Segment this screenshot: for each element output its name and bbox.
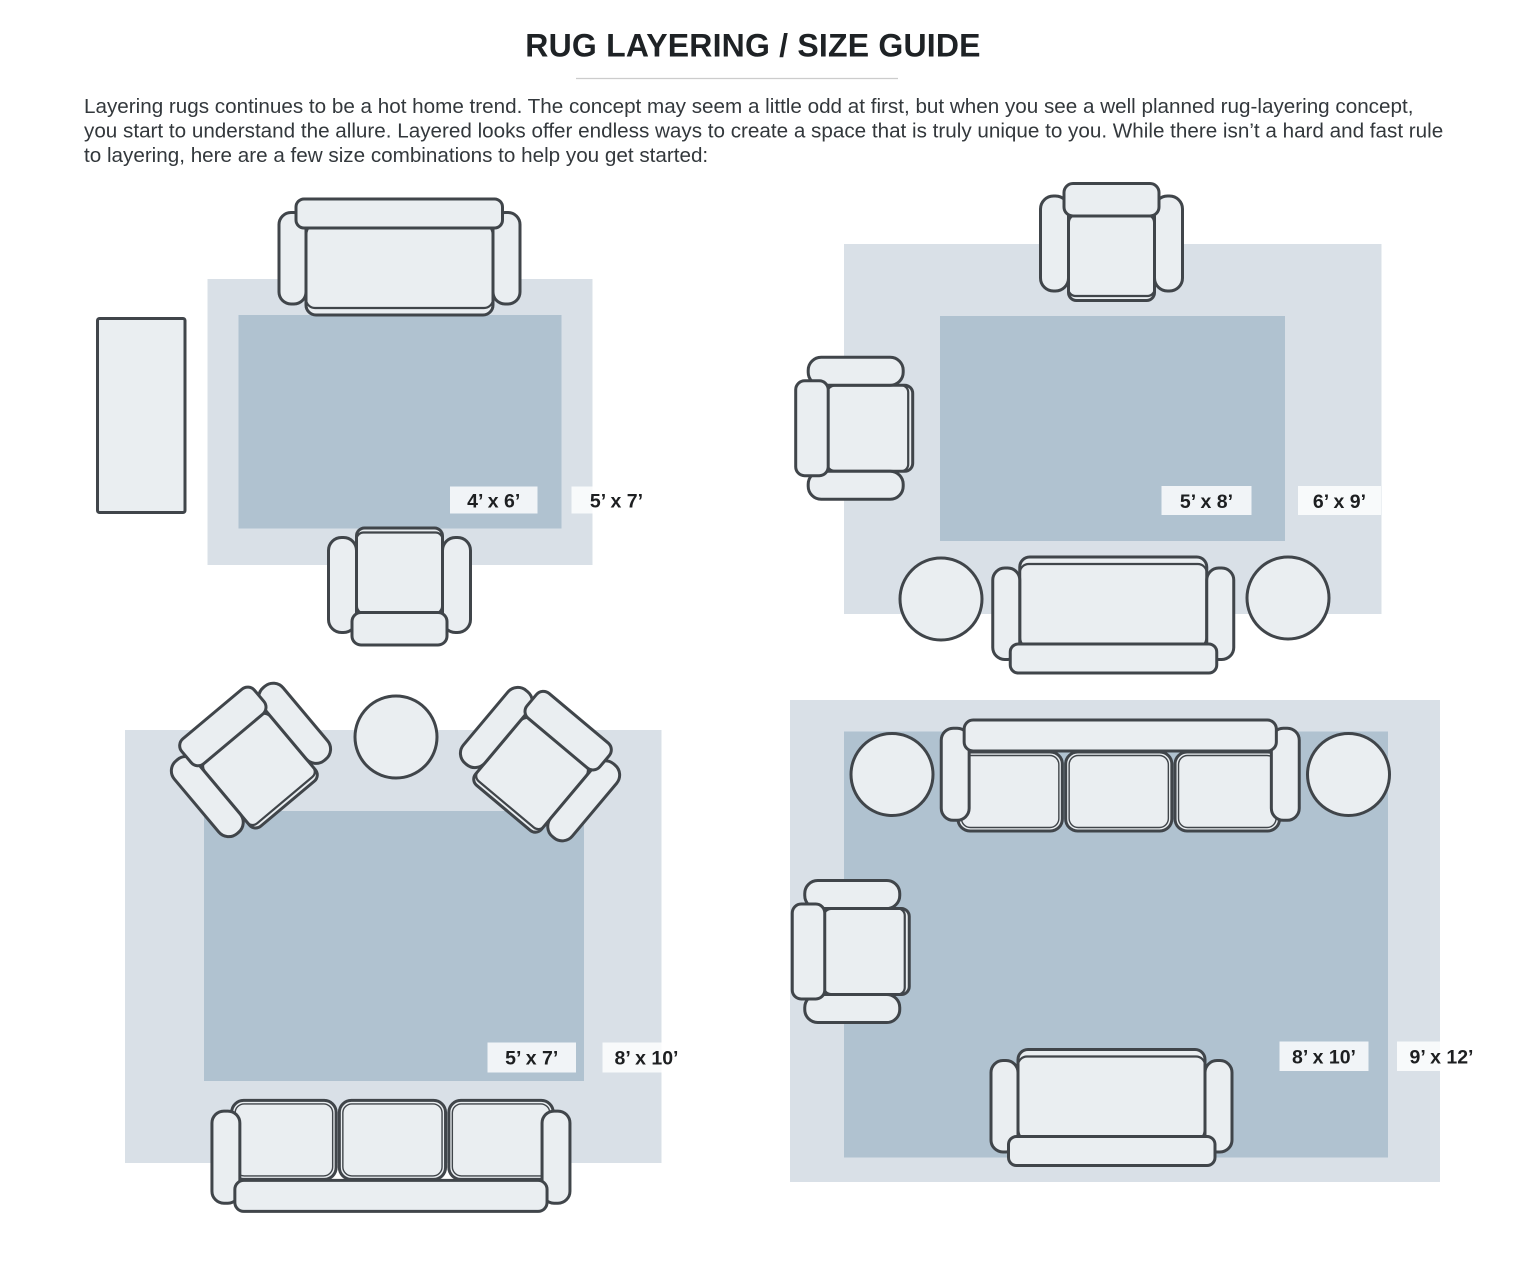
svg-text:to layering, here are a few si: to layering, here are a few size combina… — [84, 144, 708, 167]
svg-text:RUG LAYERING / SIZE GUIDE: RUG LAYERING / SIZE GUIDE — [525, 28, 980, 64]
svg-text:Layering rugs continues to be: Layering rugs continues to be a hot home… — [84, 95, 1413, 118]
svg-text:5’ x 8’: 5’ x 8’ — [1180, 491, 1233, 513]
svg-text:5’ x 7’: 5’ x 7’ — [590, 491, 643, 513]
svg-text:5’ x 7’: 5’ x 7’ — [505, 1048, 558, 1070]
svg-text:you start to understand the al: you start to understand the allure. Laye… — [84, 120, 1443, 143]
svg-text:9’ x 12’: 9’ x 12’ — [1410, 1047, 1474, 1069]
svg-text:8’ x 10’: 8’ x 10’ — [615, 1048, 679, 1070]
svg-text:6’ x 9’: 6’ x 9’ — [1313, 491, 1366, 513]
svg-text:4’ x 6’: 4’ x 6’ — [467, 491, 520, 513]
svg-text:8’ x 10’: 8’ x 10’ — [1292, 1047, 1356, 1069]
